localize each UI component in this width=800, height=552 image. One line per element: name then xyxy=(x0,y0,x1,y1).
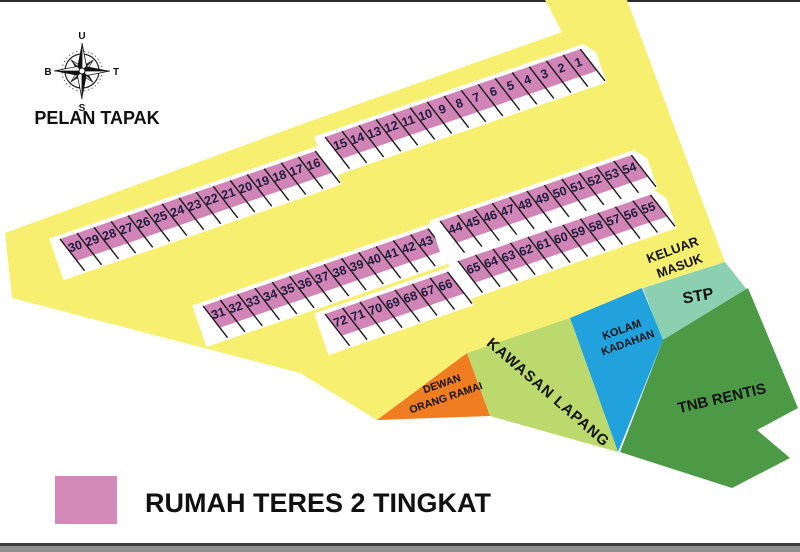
legend: RUMAH TERES 2 TINGKAT xyxy=(55,476,492,524)
site-plan-page: 1514131211109876543213029282726252423222… xyxy=(0,0,800,552)
top-border xyxy=(0,0,800,2)
legend-label: RUMAH TERES 2 TINGKAT xyxy=(145,488,492,518)
compass-label-west: B xyxy=(44,67,51,78)
compass-cardinal-points xyxy=(54,43,110,99)
compass-rose: U T S B xyxy=(44,31,119,114)
compass-label-north: U xyxy=(78,31,85,42)
compass-label-east: T xyxy=(113,67,119,78)
legend-swatch xyxy=(55,476,117,524)
page-title: PELAN TAPAK xyxy=(34,108,159,128)
bottom-border-dark xyxy=(0,543,800,546)
site-plan-map: 1514131211109876543213029282726252423222… xyxy=(0,0,800,552)
bottom-border-gray xyxy=(0,546,800,552)
